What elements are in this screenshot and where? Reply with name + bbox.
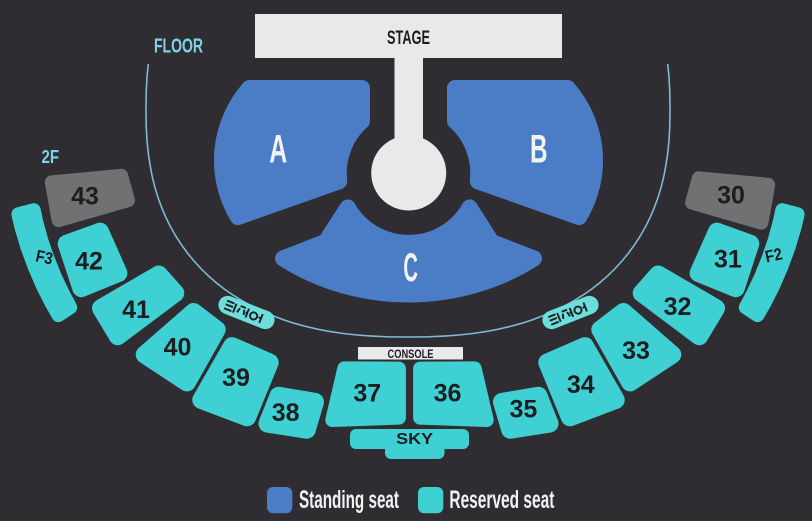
svg-text:2F: 2F <box>42 147 60 167</box>
svg-text:36: 36 <box>434 380 462 408</box>
svg-text:40: 40 <box>164 334 192 362</box>
svg-text:33: 33 <box>622 337 650 365</box>
svg-text:39: 39 <box>222 364 250 392</box>
svg-text:43: 43 <box>71 183 99 211</box>
svg-text:B: B <box>530 128 548 172</box>
svg-text:CONSOLE: CONSOLE <box>388 347 434 361</box>
svg-text:38: 38 <box>272 399 300 427</box>
svg-text:SKY: SKY <box>396 431 433 448</box>
svg-text:C: C <box>403 246 418 290</box>
svg-text:30: 30 <box>717 182 745 210</box>
svg-text:35: 35 <box>509 396 537 424</box>
svg-text:37: 37 <box>353 380 381 408</box>
svg-text:31: 31 <box>714 245 742 273</box>
svg-text:34: 34 <box>567 371 595 399</box>
svg-text:Standing seat: Standing seat <box>299 486 399 514</box>
svg-text:FLOOR: FLOOR <box>154 36 203 58</box>
svg-text:STAGE: STAGE <box>387 27 430 49</box>
svg-text:A: A <box>269 128 287 172</box>
svg-text:Reserved seat: Reserved seat <box>449 486 554 514</box>
svg-text:41: 41 <box>122 296 150 324</box>
svg-text:42: 42 <box>75 248 103 276</box>
svg-text:32: 32 <box>664 293 692 321</box>
